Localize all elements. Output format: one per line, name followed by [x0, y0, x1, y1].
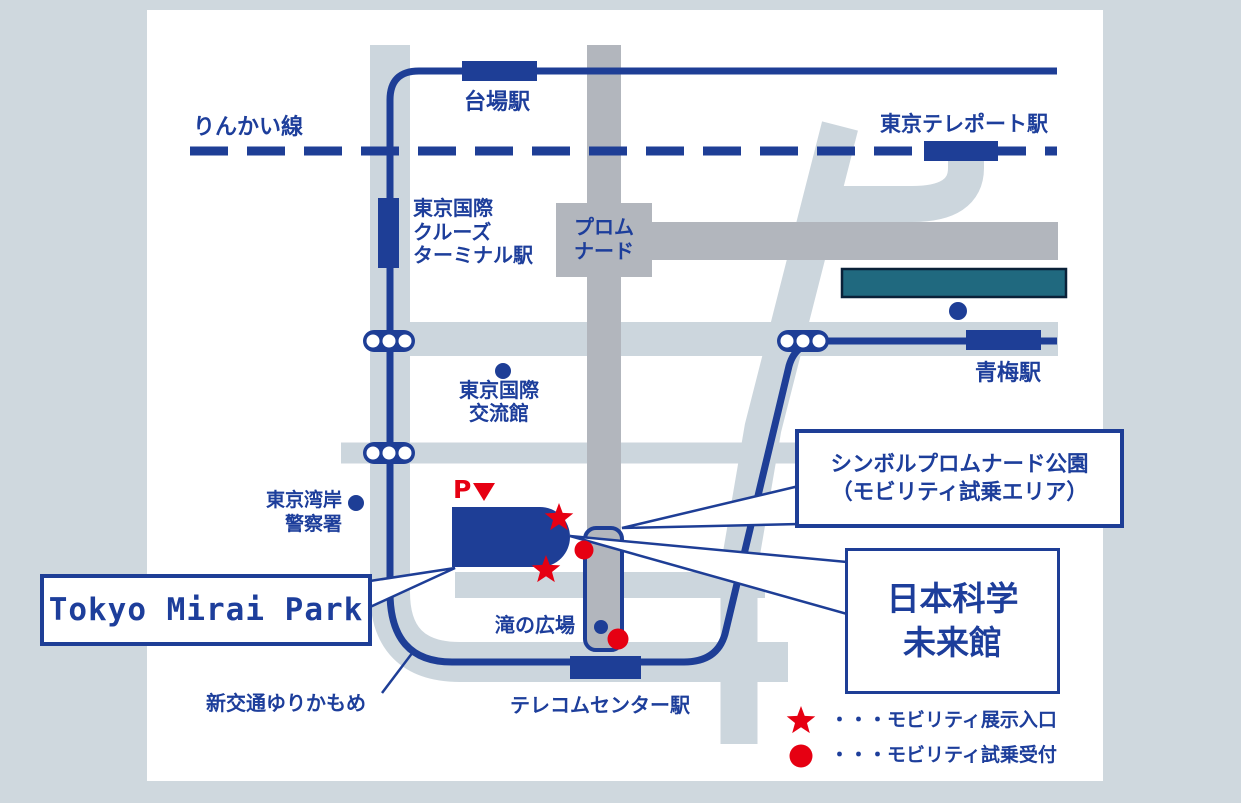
- rinkai-line-label: りんかい線: [193, 115, 303, 140]
- miraikan-callout-box: 日本科学 未来館: [845, 548, 1060, 694]
- teal-building-dot: [949, 302, 967, 320]
- exchange-center-dot: [495, 363, 511, 379]
- legend-markers: [787, 706, 816, 768]
- map-stage: りんかい線 台場駅 東京テレポート駅 東京国際 クルーズ ターミナル駅 プロム …: [0, 0, 1241, 803]
- promenade-label: プロム ナード: [556, 215, 652, 263]
- cruise-terminal-station-marker: [378, 198, 399, 268]
- teal-building: [842, 269, 1066, 297]
- taki-plaza-dot: [594, 620, 608, 634]
- exchange-center-label: 東京国際 交流館: [443, 379, 555, 426]
- miraikan-callout-text: 日本科学 未来館: [848, 551, 1057, 691]
- teleport-station-marker: [924, 141, 998, 161]
- legend-star-label: ・・・モビリティ展示入口: [830, 710, 1057, 732]
- daiba-station-label: 台場駅: [464, 90, 530, 115]
- aomi-station-label: 青梅駅: [975, 361, 1041, 386]
- telecom-center-station-marker: [570, 656, 641, 679]
- police-station-label: 東京湾岸 警察署: [238, 489, 342, 537]
- telecom-center-station-label: テレコムセンター駅: [510, 694, 690, 717]
- crossing-marker: [363, 442, 415, 464]
- crossing-marker: [363, 330, 415, 352]
- mirai-park-callout-text: Tokyo Mirai Park: [44, 578, 368, 642]
- aomi-station-marker: [966, 330, 1041, 350]
- ride-reception-dot: [608, 629, 629, 650]
- mirai-park-callout-box: Tokyo Mirai Park: [40, 574, 372, 646]
- parking-arrow-icon: [473, 483, 495, 501]
- crossing-marker: [777, 330, 829, 352]
- promenade-park-callout-text: シンボルプロムナード公園 （モビリティ試乗エリア）: [799, 433, 1120, 524]
- cruise-terminal-station-label: 東京国際 クルーズ ターミナル駅: [413, 197, 533, 268]
- legend-circle-label: ・・・モビリティ試乗受付: [830, 745, 1057, 767]
- taki-plaza-label: 滝の広場: [495, 614, 575, 637]
- parking-label: P: [453, 476, 471, 505]
- promenade-park-callout-box: シンボルプロムナード公園 （モビリティ試乗エリア）: [795, 429, 1124, 528]
- daiba-station-marker: [462, 61, 537, 81]
- yurikamome-line-label: 新交通ゆりかもめ: [206, 692, 366, 715]
- police-station-dot: [348, 495, 364, 511]
- ride-reception-dot: [575, 541, 594, 560]
- teleport-station-label: 東京テレポート駅: [880, 112, 1048, 136]
- promenade-park-wedge: [622, 486, 799, 528]
- legend-star-icon: [787, 706, 816, 733]
- legend-circle-icon: [790, 745, 813, 768]
